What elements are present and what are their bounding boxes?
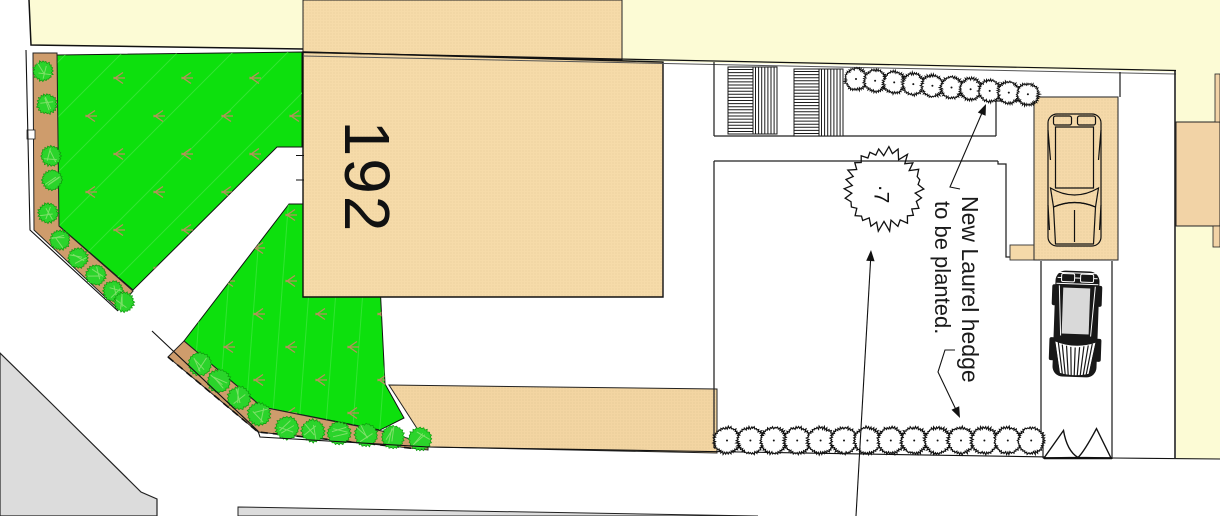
svg-text:·7: ·7 — [870, 185, 893, 204]
svg-text:to be planted.: to be planted. — [930, 201, 955, 334]
svg-text:New Laurel hedge: New Laurel hedge — [957, 196, 983, 383]
svg-text:192: 192 — [331, 121, 403, 234]
